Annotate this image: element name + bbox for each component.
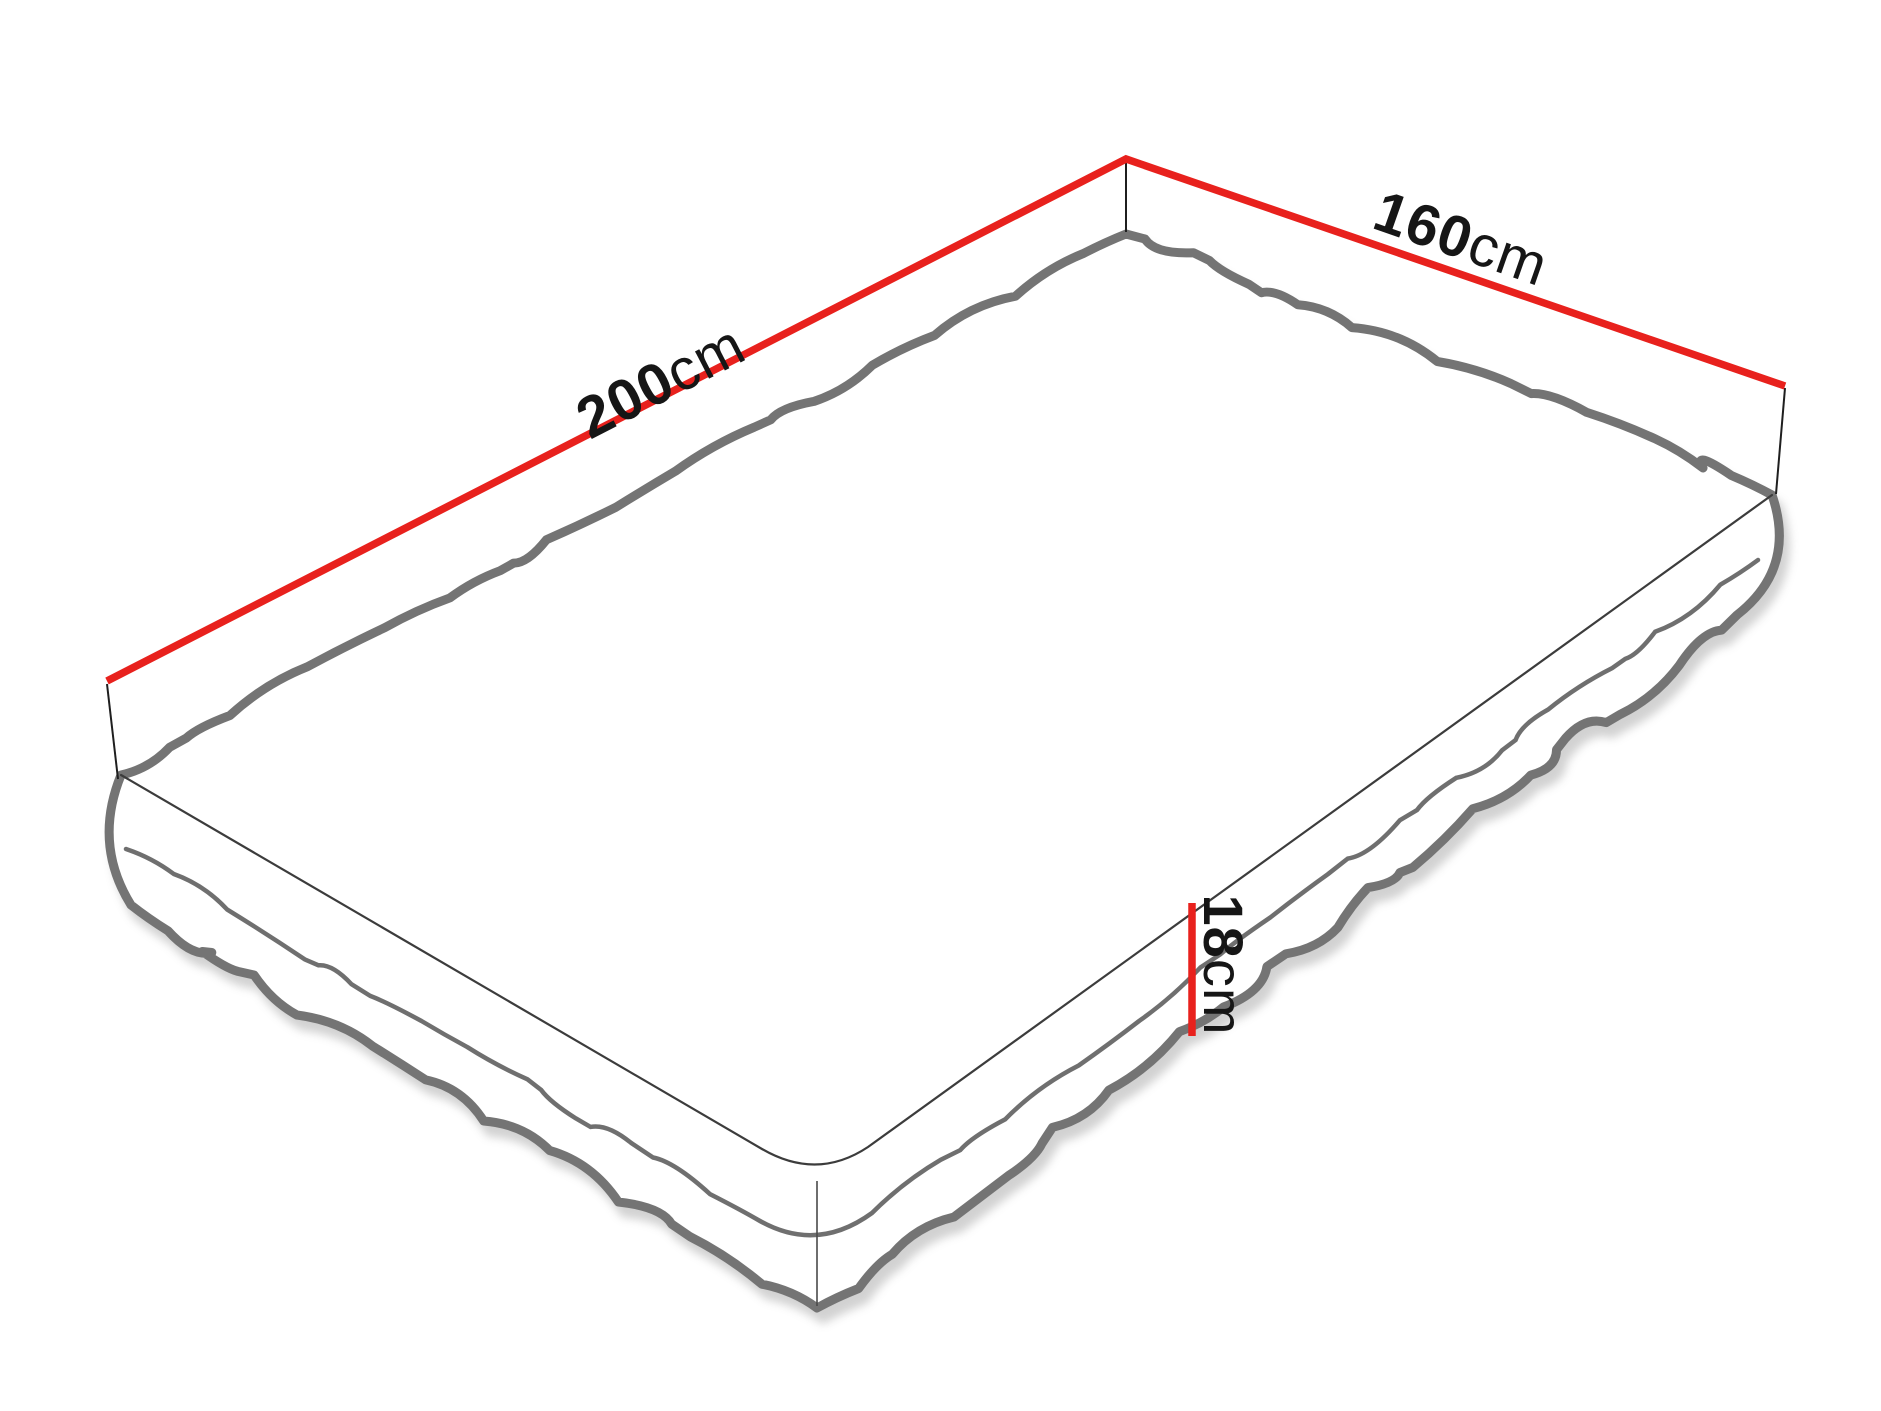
mattress-dimension-diagram: 200cm 160cm 18cm	[0, 0, 1881, 1411]
height-unit: cm	[1192, 959, 1255, 1036]
mattress-illustration	[0, 0, 1881, 1411]
width-extension-tick	[1776, 388, 1785, 494]
mattress-outline	[109, 234, 1779, 1308]
height-label: 18cm	[1195, 895, 1251, 1036]
height-value: 18	[1192, 895, 1255, 959]
length-extension-tick	[107, 684, 118, 779]
